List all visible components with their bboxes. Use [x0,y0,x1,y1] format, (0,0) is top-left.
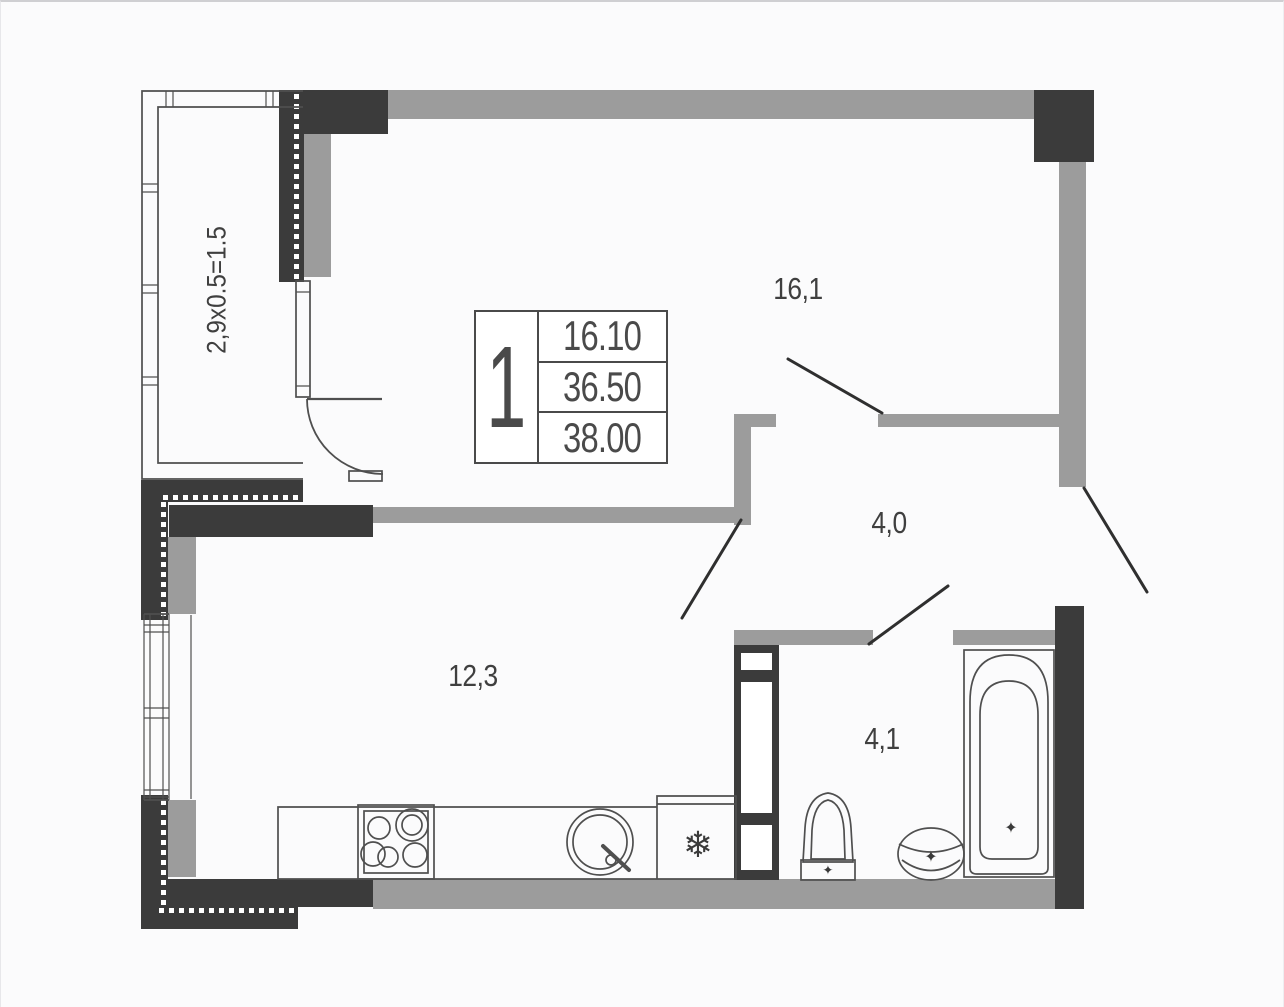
apartment-area-cell: 36.50 [539,361,666,412]
floor-plan: 1 16.10 36.50 38.00 16,1 4,0 12,3 4,1 2,… [0,0,1284,1007]
balcony-door [307,399,383,481]
entrance-door [1084,488,1147,592]
living-room-area-label: 16,1 [773,271,823,307]
area-values: 16.10 36.50 38.00 [539,312,666,462]
balcony-room-window [296,281,310,397]
kitchen-window [144,614,191,800]
kitchen-area-label: 12,3 [448,658,498,694]
bathtub [964,650,1054,877]
fridge-icon: ❄ [683,827,713,863]
unit-number: 1 [487,320,527,454]
total-area-cell: 38.00 [539,411,666,462]
balcony-dimension-label: 2,9x0.5=1.5 [202,226,233,354]
kitchen-door [682,520,741,618]
area-stamp-table: 1 16.10 36.50 38.00 [474,310,668,464]
unit-number-cell: 1 [476,312,539,462]
living-area-cell: 16.10 [539,312,666,361]
kitchen-sink [567,809,633,875]
bathtub-drain-icon: ✦ [1004,821,1017,837]
bathroom-door [869,586,948,644]
plan-linework [1,2,1284,1007]
living-room-door [788,359,882,413]
kitchen-counter [278,796,736,879]
toilet-valve-icon: ✦ [823,864,834,877]
hall-area-label: 4,0 [871,505,906,541]
basin-faucet-icon: ✦ [924,850,937,866]
stove [358,805,434,879]
bathroom-area-label: 4,1 [864,721,899,757]
